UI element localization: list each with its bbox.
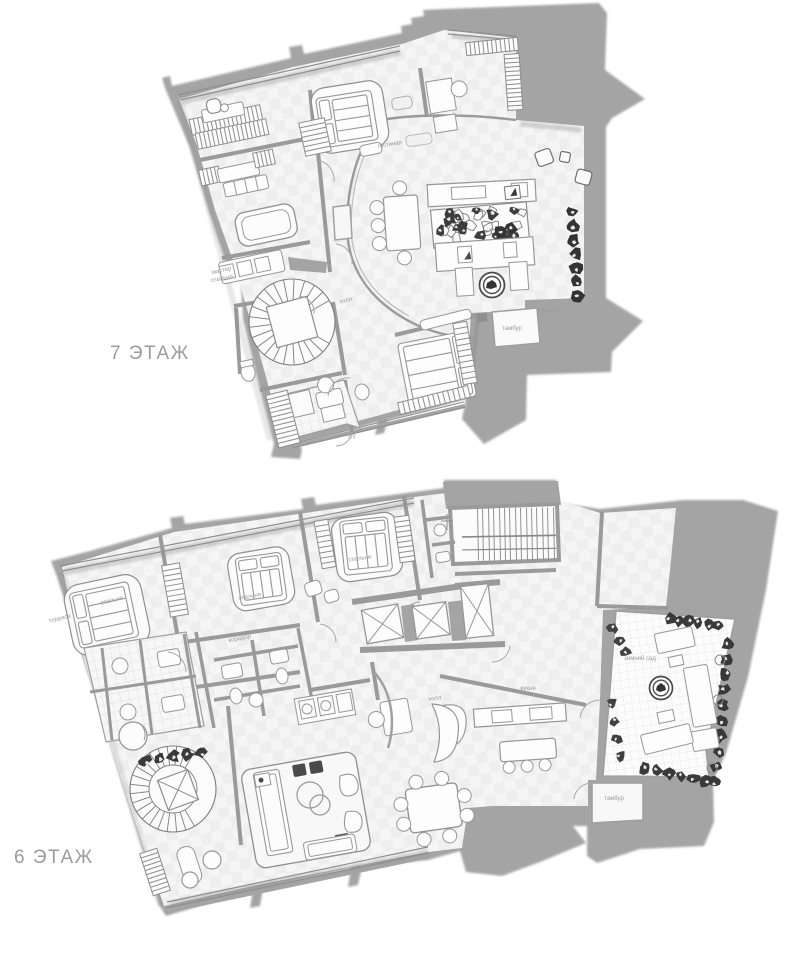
svg-text:кухня: кухня [520,686,535,692]
svg-text:6 ЭТАЖ: 6 ЭТАЖ [14,847,94,868]
svg-text:тамбур: тамбур [604,796,624,802]
svg-text:с/у: с/у [347,433,356,441]
svg-text:терраса: терраса [537,308,560,314]
svg-text:тамбур: тамбур [502,326,522,332]
svg-text:зимний сад: зимний сад [624,655,656,662]
svg-text:7 ЭТАЖ: 7 ЭТАЖ [110,343,190,364]
